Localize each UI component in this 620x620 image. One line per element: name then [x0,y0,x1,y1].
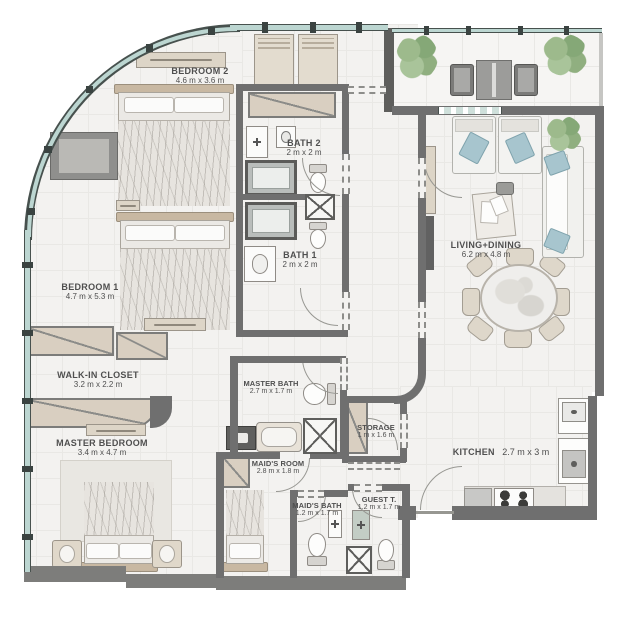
wall [588,396,597,512]
shower [245,160,297,196]
balcony-glass-door [438,107,502,114]
room-name: WALK-IN CLOSET [36,370,160,380]
wall [418,338,426,374]
room-label-master-bath: MASTER BATH 2.7 m x 1.7 m [240,380,302,397]
room-label-bath-1: BATH 1 2 m x 2 m [264,250,336,270]
sink [246,126,268,158]
window-mullion [262,22,268,33]
desk [472,190,517,240]
room-dims: 2 m x 2 m [264,260,336,270]
door-threshold [354,484,382,492]
door-threshold [418,158,426,198]
wall [342,194,349,292]
window-mullion [27,208,35,215]
door-threshold [348,462,400,470]
balcony-chair [514,64,538,96]
cabinet [298,34,338,86]
window-mullion [22,330,33,336]
room-label-bath-2: BATH 2 2 m x 2 m [268,138,340,158]
toilet [304,532,330,566]
outside-bottom-right [408,518,422,588]
wall [230,356,238,458]
room-label-storage: STORAGE 1 m x 1.6 m [348,424,404,441]
bed-blanket [84,482,154,536]
room-label-living-dining: LIVING+DINING 6.2 m x 4.8 m [430,240,542,260]
room-label-bedroom-1: BEDROOM 1 4.7 m x 5.3 m [34,282,146,302]
duct-shaft-icon [303,418,337,454]
door-threshold [348,86,386,94]
floor-plan: BEDROOM 2 4.6 m x 3.6 m BATH 2 2 m x 2 m… [0,0,620,620]
room-dims: 2.8 m x 1.8 m [246,468,310,477]
railing-post [518,26,523,35]
wall [126,574,216,588]
room-dims: 2.7 m x 3 m [502,447,549,457]
dresser [144,318,206,331]
railing-post [564,26,569,35]
wall [452,506,597,520]
toilet [306,222,330,250]
window-mullion [146,44,153,52]
wall [348,576,406,590]
bathtub [256,422,302,452]
plant [542,34,588,76]
toilet [374,538,398,570]
bench [52,540,82,568]
pillow [505,132,536,165]
railing-post [466,26,471,35]
room-name: LIVING+DINING [430,240,542,250]
wall [418,198,426,302]
door-threshold [342,292,350,330]
door-threshold [342,154,350,194]
master-bed [80,480,158,572]
room-dims: 2 m x 2 m [268,148,340,158]
room-name: GUEST T. [350,496,408,504]
room-dims: 4.7 m x 5.3 m [34,292,146,302]
top-window-wall [230,24,388,31]
room-name: MAID'S BATH [292,502,342,510]
dining-chair [504,330,532,348]
window-mullion [22,398,33,404]
room-dims: 1 m x 1.6 m [348,432,404,441]
room-name: MASTER BATH [240,380,302,388]
room-name: BATH 2 [268,138,340,148]
room-name: KITCHEN [453,447,495,457]
railing-post [424,26,429,35]
window-mullion [356,22,362,33]
balcony-chair [450,64,474,96]
toilet-bowl [308,533,326,558]
door-threshold [298,490,324,498]
dresser [86,424,146,436]
pillow [458,131,490,164]
kitchen-sink [562,402,586,422]
bed-pillow [229,543,261,559]
toilet-tank [307,556,327,566]
window-mullion [208,27,215,35]
outside-left [0,242,24,620]
room-label-bedroom-2: BEDROOM 2 4.6 m x 3.6 m [140,66,260,86]
room-dims: 3.4 m x 4.7 m [42,448,162,458]
wall [382,484,404,491]
plant [396,34,438,80]
room-name: BEDROOM 2 [140,66,260,76]
room-label-guest-toilet: GUEST T. 1.2 m x 1.7 m [350,496,408,513]
room-dims: 6.2 m x 4.8 m [430,250,542,260]
bed-blanket [226,490,264,536]
fridge-door [562,450,586,478]
window-mullion [22,534,33,540]
wall [418,106,426,158]
room-label-maids-room: MAID'S ROOM 2.8 m x 1.8 m [246,460,310,477]
wall [216,452,224,578]
wardrobe [248,92,336,118]
door-threshold [418,302,426,338]
wall [342,84,349,154]
wall [236,330,348,337]
room-dims: 1.2 m x 1.7 m [292,510,342,519]
wardrobe [116,332,168,360]
wall [24,566,126,582]
room-label-master-bedroom: MASTER BEDROOM 3.4 m x 4.7 m [42,438,162,458]
dining-chair [462,288,480,316]
bed-pillow [86,543,119,559]
wall [384,28,394,112]
room-name: MASTER BEDROOM [42,438,162,448]
wall [243,194,305,200]
cabinet [254,34,294,86]
door-threshold [340,358,348,390]
wall [216,452,280,459]
entrance-door-leaf [416,511,454,514]
room-name: STORAGE [348,424,404,432]
room-name: BEDROOM 1 [34,282,146,292]
balcony-table [476,60,512,100]
dining-table [480,264,558,332]
window-mullion [310,22,316,33]
wall [324,490,348,497]
toilet-bowl [378,539,394,562]
room-name: MAID'S ROOM [246,460,310,468]
room-dims: 1.2 m x 1.7 m [350,504,408,513]
room-dims: 2.7 m x 1.7 m [240,388,302,397]
duct-shaft-icon [305,194,335,220]
window-mullion [22,262,33,268]
shower [245,202,297,240]
room-dims: 4.6 m x 3.6 m [140,76,260,86]
bench [152,540,182,568]
wall [230,356,346,363]
room-label-walk-in-closet: WALK-IN CLOSET 3.2 m x 2.2 m [36,370,160,390]
sofa [542,146,584,258]
room-label-kitchen: KITCHEN 2.7 m x 3 m [446,442,556,460]
armchair [498,116,542,174]
single-bed-maids-room [222,488,268,572]
toilet-bowl [310,229,326,249]
balcony-edge [599,33,603,111]
wall [216,576,348,590]
window-mullion [86,86,93,93]
room-name: BATH 1 [264,250,336,260]
toilet-tank [377,560,395,570]
desk-chair [496,182,514,195]
window-mullion [44,146,52,153]
window-mullion [22,466,33,472]
duct-shaft-icon [346,546,372,574]
bed-pillow [119,543,152,559]
room-dims: 3.2 m x 2.2 m [36,380,160,390]
wall [595,106,604,396]
room-label-maids-bath: MAID'S BATH 1.2 m x 1.7 m [292,502,342,519]
wardrobe [26,326,114,356]
plant [546,116,582,152]
